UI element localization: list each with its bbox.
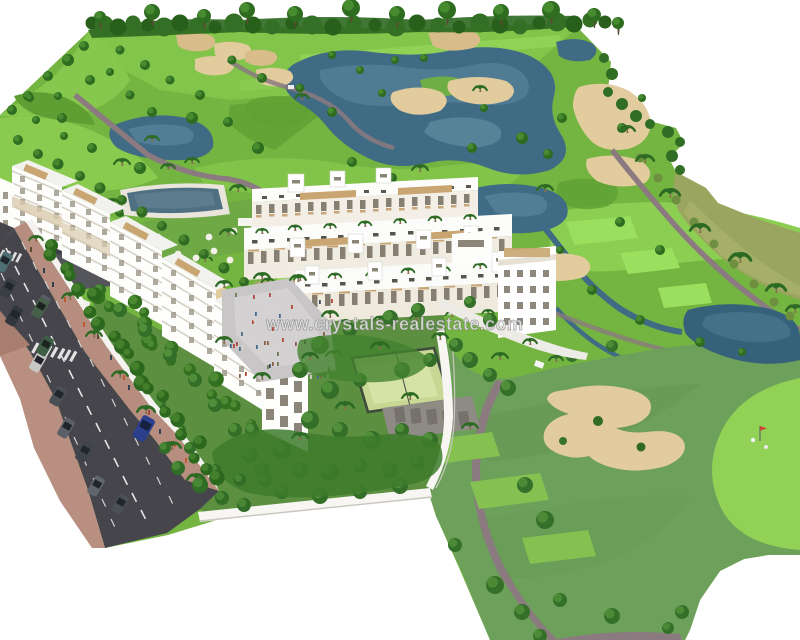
svg-text:www.crystals-realestate.com: www.crystals-realestate.com [265,314,523,334]
